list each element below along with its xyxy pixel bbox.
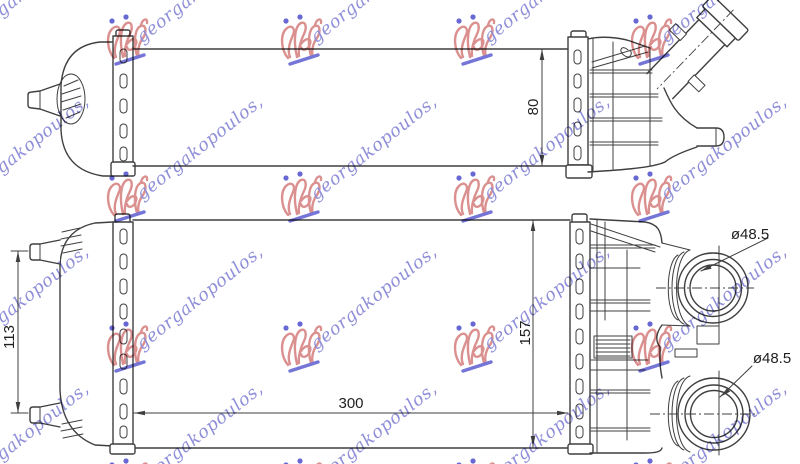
- front-view-core: [133, 220, 570, 448]
- side-view-left-tank: [61, 42, 113, 176]
- catalog-part-image: 80: [0, 0, 800, 464]
- upper-port: [656, 243, 754, 344]
- side-view-core: [133, 49, 568, 166]
- dimension-core-width-label: 300: [338, 395, 363, 412]
- side-view-nozzle: [697, 128, 724, 146]
- side-view-right-tank: [588, 37, 697, 172]
- lower-port: [650, 349, 755, 455]
- front-view-left-bracket: [110, 214, 135, 454]
- dimension-pin-spacing-label: 113: [1, 325, 18, 349]
- side-view-left-bracket: [111, 30, 135, 176]
- front-view-right-bracket: [568, 214, 593, 454]
- side-view-inlet-pipe: [634, 0, 756, 111]
- upper-port-diameter-label: ø48.5: [731, 226, 769, 243]
- technical-drawing-svg: 80: [0, 0, 800, 464]
- side-view: 80: [28, 0, 756, 178]
- front-view-upper-louvre: [61, 228, 82, 253]
- side-view-right-bracket: [566, 31, 592, 178]
- side-view-pin: [28, 84, 60, 116]
- front-view-upper-pin: [30, 240, 60, 264]
- front-view: 113 300 157 ø48.5 ø48.5: [1, 214, 791, 455]
- dimension-pin-spacing: 113: [1, 251, 28, 413]
- dimension-core-width: 300: [134, 395, 568, 415]
- front-view-lower-pin: [30, 403, 60, 427]
- front-view-right-tank: [590, 219, 662, 453]
- dimension-depth: 80: [525, 49, 544, 166]
- dimension-core-height-label: 157: [517, 320, 534, 345]
- lower-port-diameter-label: ø48.5: [753, 350, 791, 367]
- dimension-depth-label: 80: [525, 99, 542, 116]
- front-view-left-tank: [60, 222, 113, 446]
- tank-louver-hatch: [594, 336, 632, 358]
